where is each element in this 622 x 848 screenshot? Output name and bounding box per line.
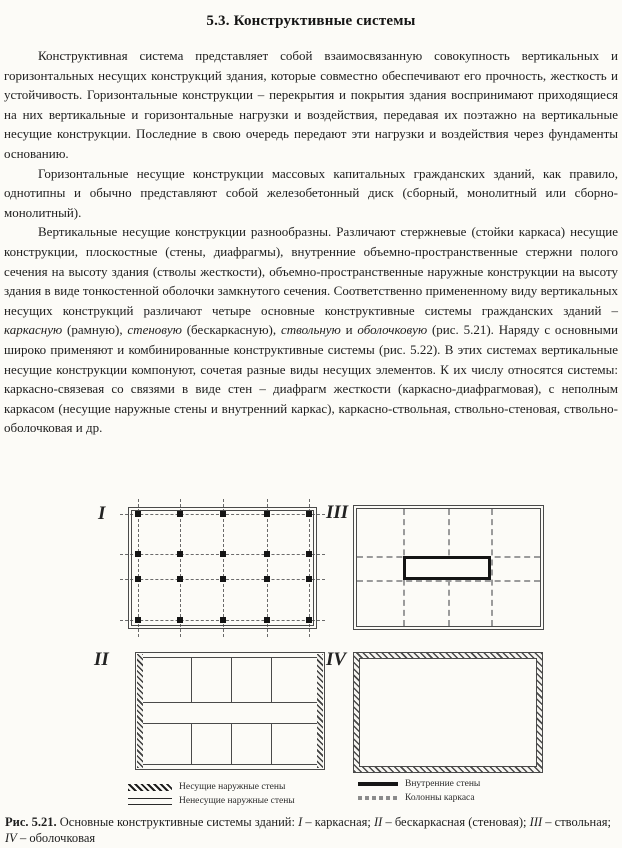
diagram-label-shell: IV [326,649,346,671]
column-dot [264,576,270,582]
column-dot [264,511,270,517]
text-segment: – каркасная; [302,815,374,829]
text-segment: – бескаркасная (стеновая); [382,815,529,829]
legend-label: Внутренние стены [405,779,480,789]
column-dot [135,617,141,623]
column-dot [177,551,183,557]
bearing-outer-wall-swatch-icon [128,784,172,791]
inner-wall-line [143,657,317,658]
partition-axis [491,509,493,626]
frame-system-plan [128,507,317,629]
text-segment: стеновую [127,322,181,337]
column-dot [177,576,183,582]
column-dot [135,551,141,557]
text-segment: (рамную), [62,322,127,337]
paragraph: Вертикальные несущие конструкции разнооб… [4,222,618,438]
text-segment: Конструктивная система представляет собо… [4,48,618,161]
text-segment: III [530,815,543,829]
bearing-end-wall [137,654,143,768]
legend-left: Несущие наружные стены Ненесущие наружны… [128,780,295,808]
legend-item: Внутренние стены [358,777,480,791]
column-dot [220,617,226,623]
wall-system-plan [135,652,325,770]
body-text: Конструктивная система представляет собо… [4,46,618,438]
text-segment: Горизонтальные несущие конструкции массо… [4,166,618,220]
column-dot [177,511,183,517]
legend-item: Ненесущие наружные стены [128,794,295,808]
text-segment: ствольную [281,322,341,337]
legend-item: Колонны каркаса [358,791,480,805]
column-dot [220,551,226,557]
text-segment: каркасную [4,322,62,337]
scanned-book-page: 5.3. Конструктивные системы Конструктивн… [0,0,622,848]
inner-wall-swatch-icon [358,782,398,786]
column-dot [135,511,141,517]
text-segment: Рис. 5.21. [5,815,57,829]
legend-label: Ненесущие наружные стены [179,796,295,806]
text-segment: оболочковую [357,322,427,337]
legend-label: Колонны каркаса [405,793,475,803]
inner-wall-line [143,764,317,765]
corridor-wall [143,702,317,703]
cross-wall [191,658,192,702]
cross-wall [191,724,192,764]
diagram-label-core: III [326,502,348,524]
cross-wall [271,724,272,764]
text-segment: и [341,322,358,337]
shell-system-plan [353,652,543,773]
text-segment: IV [5,831,17,845]
figure-caption: Рис. 5.21. Основные конструктивные систе… [5,814,617,846]
text-segment: – оболочковая [17,831,95,845]
paragraph: Конструктивная система представляет собо… [4,46,618,164]
column-dot [264,551,270,557]
partition-axis [357,580,540,582]
bearing-end-wall [317,654,323,768]
diagram-label-frame: I [98,503,105,525]
legend-label: Несущие наружные стены [179,782,285,792]
column-dot [220,511,226,517]
text-segment: (рис. 5.21). Наряду с основными широко п… [4,322,618,435]
corridor-wall [143,723,317,724]
text-segment: (бескаркасную), [182,322,281,337]
shell-interior [359,658,537,767]
column-dot [264,617,270,623]
column-dot [306,511,312,517]
text-segment: Основные конструктивные системы зданий: [57,815,298,829]
legend-right: Внутренние стены Колонны каркаса [358,777,480,805]
text-segment: Вертикальные несущие конструкции разнооб… [4,224,618,317]
column-dot [220,576,226,582]
diagram-label-wall: II [94,649,109,671]
column-dot [306,617,312,623]
cross-wall [231,724,232,764]
frame-columns-swatch-icon [358,796,398,800]
section-title: 5.3. Конструктивные системы [0,13,622,30]
core-system-plan [353,505,544,630]
column-dot [135,576,141,582]
column-dot [306,576,312,582]
legend-item: Несущие наружные стены [128,780,295,794]
stiffness-core [403,556,491,580]
column-dot [306,551,312,557]
cross-wall [271,658,272,702]
column-dot [177,617,183,623]
paragraph: Горизонтальные несущие конструкции массо… [4,164,618,223]
text-segment: – ствольная; [542,815,611,829]
cross-wall [231,658,232,702]
nonbearing-outer-wall-swatch-icon [128,798,172,805]
